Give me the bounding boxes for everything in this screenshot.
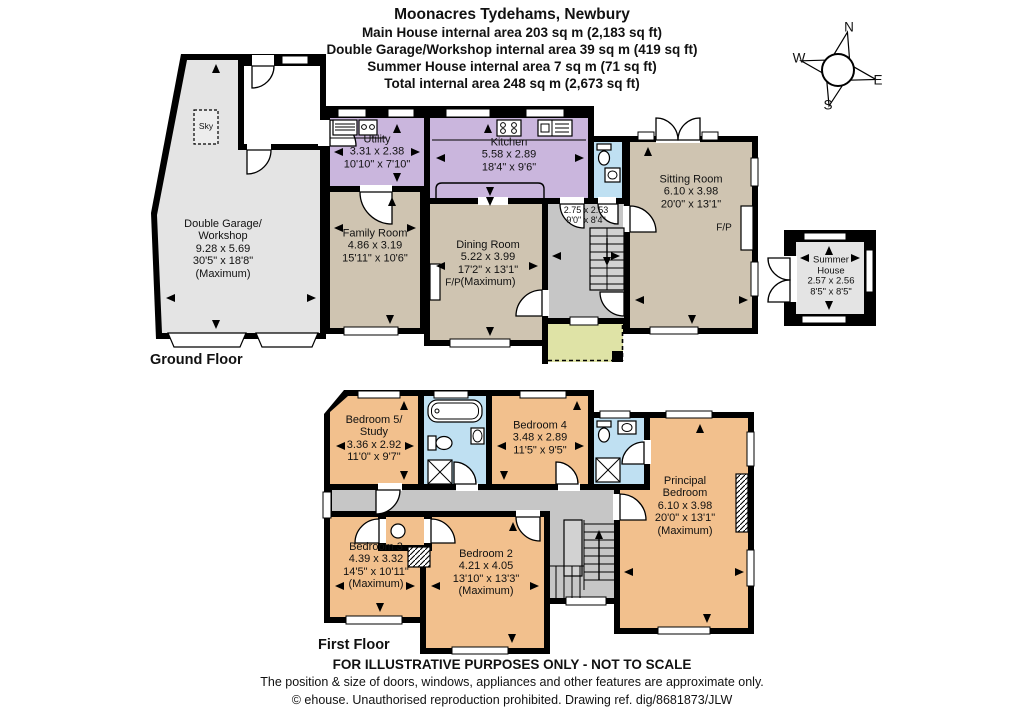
area-line-summer: Summer House internal area 7 sq m (71 sq… <box>0 58 1024 75</box>
plan-header: Moonacres Tydehams, Newbury Main House i… <box>0 6 1024 92</box>
compass-n: N <box>844 20 854 35</box>
sitting-fireplace <box>741 206 753 250</box>
room-label-summer: SummerHouse2.57 x 2.568'5" x 8'5" <box>807 256 854 299</box>
bath-icon <box>428 400 482 422</box>
sitting-fireplace-label: F/P <box>716 222 732 233</box>
area-line-garage: Double Garage/Workshop internal area 39 … <box>0 41 1024 58</box>
nook-basin-icon <box>391 524 405 538</box>
room-label-kitchen: Kitchen5.58 x 2.8918'4" x 9'6" <box>482 136 536 173</box>
compass-w: W <box>793 51 806 66</box>
ensuite-shower-icon <box>596 458 620 482</box>
room-label-sitting: Sitting Room6.10 x 3.9820'0" x 13'1" <box>660 173 723 210</box>
room-label-utility: Utility3.31 x 2.3810'10" x 7'10" <box>344 133 410 170</box>
bathroom-toilet-icon <box>428 436 452 450</box>
chimney-hatch <box>408 547 430 567</box>
room-label-bed4: Bedroom 43.48 x 2.8911'5" x 9'5" <box>513 419 567 456</box>
room-label-bed2: Bedroom 24.21 x 4.0513'10" x 13'3"(Maxim… <box>453 548 519 598</box>
room-label-garage: Double Garage/Workshop9.28 x 5.6930'5" x… <box>184 218 262 280</box>
ensuite-basin-icon <box>618 421 636 434</box>
skylight-label: Sky <box>199 122 213 132</box>
floorplan-page: Moonacres Tydehams, Newbury Main House i… <box>0 0 1024 724</box>
ground-floor-label: Ground Floor <box>150 352 243 368</box>
shower-icon <box>428 460 452 484</box>
area-line-main: Main House internal area 203 sq m (2,183… <box>0 24 1024 41</box>
plan-title: Moonacres Tydehams, Newbury <box>0 6 1024 24</box>
ground-stairs <box>590 228 624 290</box>
dining-fireplace-label: F/P <box>445 277 461 288</box>
room-label-bed3: Bedroom 34.39 x 3.3214'5" x 10'11"(Maxim… <box>343 541 409 591</box>
wc-basin-icon <box>605 168 620 182</box>
compass-s: S <box>823 98 832 113</box>
compass-e: E <box>873 73 882 88</box>
wardrobe-hatch <box>736 474 748 532</box>
footer-approx-note: The position & size of doors, windows, a… <box>0 674 1024 692</box>
porch-floor <box>548 324 623 362</box>
bathroom-basin-icon <box>471 428 484 444</box>
wc-toilet-icon <box>597 144 611 165</box>
ensuite-toilet-icon <box>597 421 611 442</box>
garage-door-icon <box>168 333 318 347</box>
area-line-total: Total internal area 248 sq m (2,673 sq f… <box>0 75 1024 92</box>
room-label-bed5: Bedroom 5/Study3.36 x 2.9211'0" x 9'7" <box>346 414 403 464</box>
dining-fireplace <box>430 264 440 300</box>
footer-copyright: © ehouse. Unauthorised reproduction proh… <box>0 692 1024 710</box>
kitchen-sink-icon <box>538 120 572 136</box>
room-label-principal: PrincipalBedroom6.10 x 3.9820'0" x 13'1"… <box>655 475 715 537</box>
footer-disclaimer: FOR ILLUSTRATIVE PURPOSES ONLY - NOT TO … <box>0 656 1024 674</box>
plan-footer: FOR ILLUSTRATIVE PURPOSES ONLY - NOT TO … <box>0 656 1024 709</box>
room-label-dining: Dining Room5.22 x 3.9917'2" x 13'1"(Maxi… <box>456 239 520 289</box>
room-sitting-floor <box>630 142 752 328</box>
room-label-family: Family Room4.86 x 3.1915'11" x 10'6" <box>342 227 408 264</box>
room-label-hall: 2.75 x 2.539'0" x 8'4" <box>564 205 609 225</box>
first-floor-label: First Floor <box>318 637 390 653</box>
